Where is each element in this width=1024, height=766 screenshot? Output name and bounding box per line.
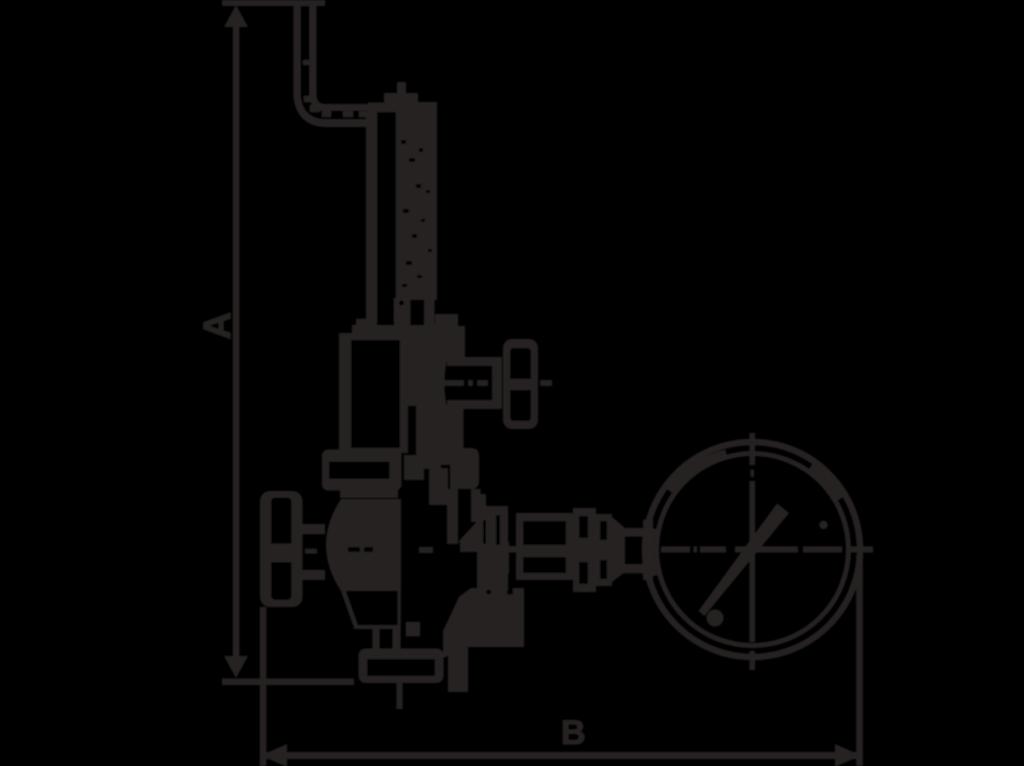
svg-text:B: B <box>561 714 586 752</box>
svg-text:A: A <box>197 312 239 339</box>
